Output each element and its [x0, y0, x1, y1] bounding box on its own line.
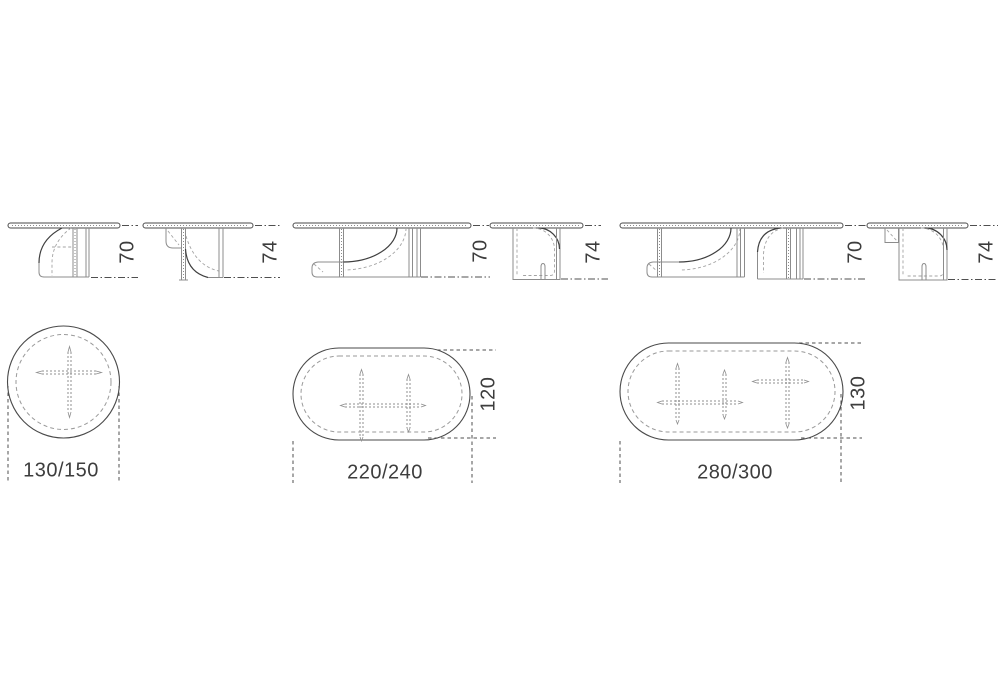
dim-depth-oval-top: 120 — [478, 377, 501, 412]
table-top-outline — [620, 343, 843, 440]
dim-height-oval-side: 74 — [583, 240, 606, 263]
table-top-outline — [8, 326, 120, 438]
dim-height-oval-front: 70 — [470, 239, 493, 262]
dim-width-oval-top: 220/240 — [347, 462, 423, 485]
dim-height-large-oval-front: 70 — [845, 240, 868, 263]
technical-drawing-canvas: 70 74 70 74 70 74 130/150 220/240 120 28… — [0, 0, 1000, 700]
dim-height-large-oval-side: 74 — [976, 240, 999, 263]
elevation-large-oval-front — [620, 223, 866, 279]
dim-height-round-side: 74 — [260, 240, 283, 263]
base-footprint — [662, 362, 804, 424]
table-top-profile — [620, 223, 843, 228]
base-footprint — [42, 352, 96, 412]
dim-width-round-top: 130/150 — [23, 460, 99, 483]
dim-depth-large-oval-top: 130 — [848, 376, 871, 411]
technical-line-drawing — [0, 0, 1000, 700]
dim-width-large-oval-top: 280/300 — [697, 462, 773, 485]
base-footprint — [345, 374, 421, 437]
elevation-oval-front — [293, 223, 490, 277]
dim-height-round-front: 70 — [117, 240, 140, 263]
